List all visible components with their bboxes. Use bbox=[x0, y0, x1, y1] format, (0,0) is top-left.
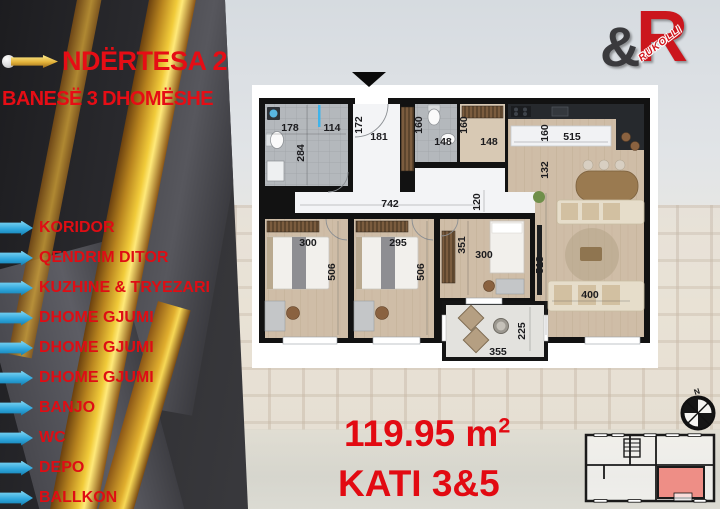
dim-wc-160: 160 bbox=[413, 116, 425, 134]
wardrobe bbox=[267, 221, 319, 232]
blue-arrow-icon bbox=[0, 491, 33, 506]
shower bbox=[267, 161, 284, 181]
desk bbox=[265, 301, 285, 331]
dim-gjumi3-351: 351 bbox=[456, 236, 468, 254]
floorplan: 178 114 284 172 181 160 148 160 148 160 … bbox=[252, 85, 658, 368]
blue-arrow-icon bbox=[0, 401, 33, 416]
dim-ballkon-355: 355 bbox=[489, 346, 507, 358]
blue-arrow-icon bbox=[0, 281, 33, 296]
list-item-wc: WC bbox=[0, 423, 210, 453]
compass-north-label: N bbox=[693, 388, 701, 397]
list-item-ballkon: BALLKON bbox=[0, 483, 210, 509]
toilet bbox=[428, 109, 440, 125]
dim-wc-148: 148 bbox=[434, 136, 452, 148]
dim-banjo-178: 178 bbox=[281, 122, 299, 134]
koridor-floor-upper bbox=[415, 168, 505, 192]
page-title: NDËRTESA 2 bbox=[62, 48, 227, 75]
dim-depo-148: 148 bbox=[480, 136, 498, 148]
rukolli-logo: & R RUKOLLI bbox=[600, 2, 712, 82]
list-item-dhome-gjumi-1: DHOME GJUMI bbox=[0, 303, 210, 333]
wardrobe bbox=[356, 221, 408, 232]
dim-hyrja-181: 181 bbox=[370, 131, 388, 143]
window-gjumi1 bbox=[283, 337, 337, 344]
entrance-door-gap bbox=[355, 98, 388, 104]
dim-ditor-518: 518 bbox=[534, 256, 546, 274]
gold-arrow-icon bbox=[2, 54, 58, 69]
dim-gjumi2-506: 506 bbox=[415, 263, 427, 281]
blue-arrow-icon bbox=[0, 461, 33, 476]
blue-arrow-icon bbox=[0, 371, 33, 386]
dim-banjo-284: 284 bbox=[295, 144, 307, 162]
depo-shelf bbox=[462, 106, 503, 118]
flyer-slide: NDËRTESA 2 BANESË 3 DHOMËSHE KORIDOR QEN… bbox=[0, 0, 720, 509]
area-label: 119.95 m2 bbox=[344, 415, 510, 452]
coffee-table bbox=[580, 247, 602, 261]
dim-gjumi1-300: 300 bbox=[299, 237, 317, 249]
entrance-arrow-icon bbox=[352, 72, 386, 87]
list-item-kuzhine: KUZHINE & TRYEZARI bbox=[0, 273, 210, 303]
room-list: KORIDOR QENDRIM DITOR KUZHINE & TRYEZARI… bbox=[0, 213, 210, 509]
window-gjumi2 bbox=[373, 337, 420, 344]
dim-koridor-120: 120 bbox=[471, 193, 483, 211]
floorplan-card: 178 114 284 172 181 160 148 160 148 160 … bbox=[252, 85, 658, 368]
list-item-depo: DEPO bbox=[0, 453, 210, 483]
cooktop bbox=[511, 106, 531, 117]
glass-partition bbox=[318, 105, 321, 127]
balcony-door-gap bbox=[466, 298, 502, 304]
list-item-qendrim-ditor: QENDRIM DITOR bbox=[0, 243, 210, 273]
desk bbox=[354, 301, 374, 331]
dim-kuzhina-160: 160 bbox=[539, 124, 551, 142]
dim-gjumi1-506: 506 bbox=[326, 263, 338, 281]
dim-depo-160: 160 bbox=[458, 116, 470, 134]
dim-hyrja-172: 172 bbox=[353, 116, 365, 134]
dim-banjo-114: 114 bbox=[324, 122, 341, 134]
compass-icon: N bbox=[676, 388, 720, 432]
blue-arrow-icon bbox=[0, 221, 33, 236]
desk bbox=[496, 279, 524, 294]
list-item-koridor: KORIDOR bbox=[0, 213, 210, 243]
dim-kuzhina-132: 132 bbox=[539, 161, 551, 179]
wardrobe bbox=[442, 231, 455, 283]
key-plan bbox=[584, 429, 718, 509]
kitchen-island bbox=[511, 126, 611, 146]
blue-arrow-icon bbox=[0, 311, 33, 326]
plant bbox=[533, 191, 545, 203]
blue-arrow-icon bbox=[0, 431, 33, 446]
left-panel: NDËRTESA 2 BANESË 3 DHOMËSHE KORIDOR QEN… bbox=[0, 0, 252, 509]
window-ditor bbox=[585, 337, 640, 344]
dim-gjumi2-295: 295 bbox=[389, 237, 407, 249]
kitchen-sink bbox=[552, 107, 568, 116]
page-subtitle: BANESË 3 DHOMËSHE bbox=[2, 88, 213, 111]
floor-label: KATI 3&5 bbox=[338, 465, 500, 502]
dim-gjumi3-300: 300 bbox=[475, 249, 493, 261]
blue-arrow-icon bbox=[0, 341, 33, 356]
dining-table bbox=[576, 171, 638, 201]
koridor-floor bbox=[295, 192, 535, 213]
list-item-banjo: BANJO bbox=[0, 393, 210, 423]
logo-ampersand: & bbox=[600, 14, 640, 79]
dim-ditor-400: 400 bbox=[581, 289, 599, 301]
dim-kuzhina-515: 515 bbox=[563, 131, 581, 143]
list-item-dhome-gjumi-2: DHOME GJUMI bbox=[0, 333, 210, 363]
blue-arrow-icon bbox=[0, 251, 33, 266]
dim-ballkon-225: 225 bbox=[516, 322, 528, 340]
dim-koridor-742: 742 bbox=[381, 198, 399, 210]
list-item-dhome-gjumi-3: DHOME GJUMI bbox=[0, 363, 210, 393]
